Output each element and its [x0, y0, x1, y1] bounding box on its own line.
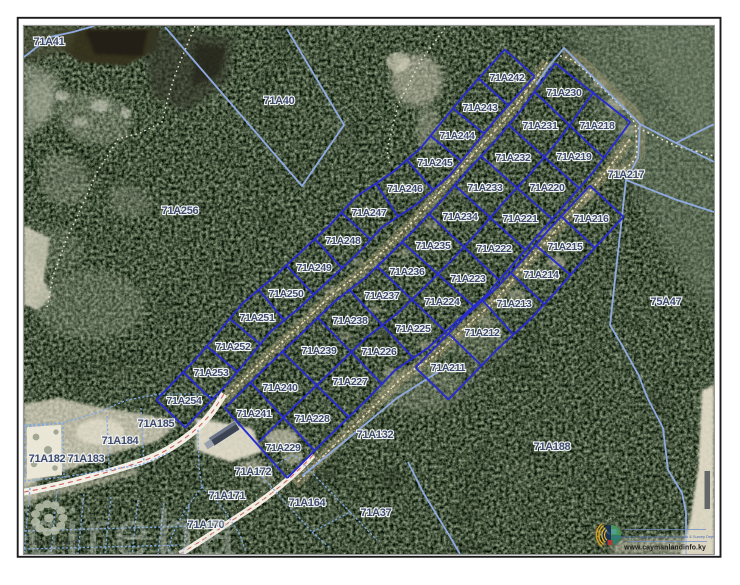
svg-text:71A228: 71A228 — [295, 413, 330, 425]
svg-text:71A243: 71A243 — [463, 102, 498, 114]
svg-text:71A183: 71A183 — [68, 453, 105, 465]
svg-text:71A212: 71A212 — [465, 327, 500, 339]
svg-text:71A234: 71A234 — [443, 211, 478, 223]
svg-text:71A230: 71A230 — [547, 87, 582, 99]
svg-text:71A188: 71A188 — [534, 441, 571, 453]
svg-text:71A250: 71A250 — [269, 288, 304, 300]
svg-text:71A218: 71A218 — [580, 120, 615, 132]
svg-text:71A221: 71A221 — [503, 213, 538, 225]
svg-text:71A248: 71A248 — [326, 235, 361, 247]
svg-text:71A40: 71A40 — [264, 95, 295, 107]
svg-text:71A236: 71A236 — [390, 266, 425, 278]
svg-text:71A242: 71A242 — [490, 72, 525, 84]
svg-text:71A237: 71A237 — [365, 290, 400, 302]
svg-text:71A216: 71A216 — [574, 213, 609, 225]
svg-text:71A226: 71A226 — [362, 346, 397, 358]
svg-text:71A252: 71A252 — [216, 341, 251, 353]
svg-text:71A238: 71A238 — [333, 315, 368, 327]
svg-text:71A224: 71A224 — [425, 296, 460, 308]
svg-text:71A184: 71A184 — [102, 435, 140, 447]
svg-text:71A37: 71A37 — [361, 507, 392, 519]
svg-text:71A41: 71A41 — [34, 36, 65, 48]
svg-text:71A227: 71A227 — [333, 376, 368, 388]
svg-text:71A240: 71A240 — [263, 382, 298, 394]
svg-text:71A244: 71A244 — [440, 130, 475, 142]
svg-text:71A225: 71A225 — [396, 323, 431, 335]
svg-text:71A222: 71A222 — [477, 243, 512, 255]
svg-text:71A220: 71A220 — [530, 182, 565, 194]
svg-text:71A182: 71A182 — [29, 453, 66, 465]
svg-text:71A241: 71A241 — [237, 408, 272, 420]
svg-text:71A233: 71A233 — [468, 182, 503, 194]
svg-text:71A215: 71A215 — [548, 241, 583, 253]
svg-text:71A164: 71A164 — [289, 497, 327, 509]
svg-text:71A251: 71A251 — [240, 312, 275, 324]
svg-text:3/25/23, 12:44 PM: 3/25/23, 12:44 PM — [29, 540, 82, 547]
svg-text:71A172: 71A172 — [235, 466, 272, 478]
svg-text:71A247: 71A247 — [352, 207, 387, 219]
svg-text:71A253: 71A253 — [194, 367, 229, 379]
svg-text:71A239: 71A239 — [302, 345, 337, 357]
svg-text:71A217: 71A217 — [608, 169, 645, 181]
svg-text:71A213: 71A213 — [497, 298, 532, 310]
svg-text:71A219: 71A219 — [557, 151, 592, 163]
svg-text:71A256: 71A256 — [162, 205, 199, 217]
svg-text:An electronic mapping service: An electronic mapping service of the Lan… — [614, 534, 716, 539]
svg-text:71A235: 71A235 — [416, 240, 451, 252]
svg-text:71A232: 71A232 — [496, 152, 531, 164]
svg-text:www.caymanlandinfo.ky: www.caymanlandinfo.ky — [623, 545, 706, 552]
svg-text:71A223: 71A223 — [451, 273, 486, 285]
svg-text:71A229: 71A229 — [266, 442, 301, 454]
svg-text:71A254: 71A254 — [167, 395, 202, 407]
svg-text:71A211: 71A211 — [431, 362, 466, 374]
svg-text:71A249: 71A249 — [297, 262, 332, 274]
svg-text:71A231: 71A231 — [523, 120, 558, 132]
svg-text:71A185: 71A185 — [138, 418, 175, 430]
svg-text:71A246: 71A246 — [388, 183, 423, 195]
svg-text:71A245: 71A245 — [418, 157, 453, 169]
svg-text:71A214: 71A214 — [524, 269, 559, 281]
svg-text:75A47: 75A47 — [651, 296, 682, 308]
svg-text:71A132: 71A132 — [357, 429, 394, 441]
